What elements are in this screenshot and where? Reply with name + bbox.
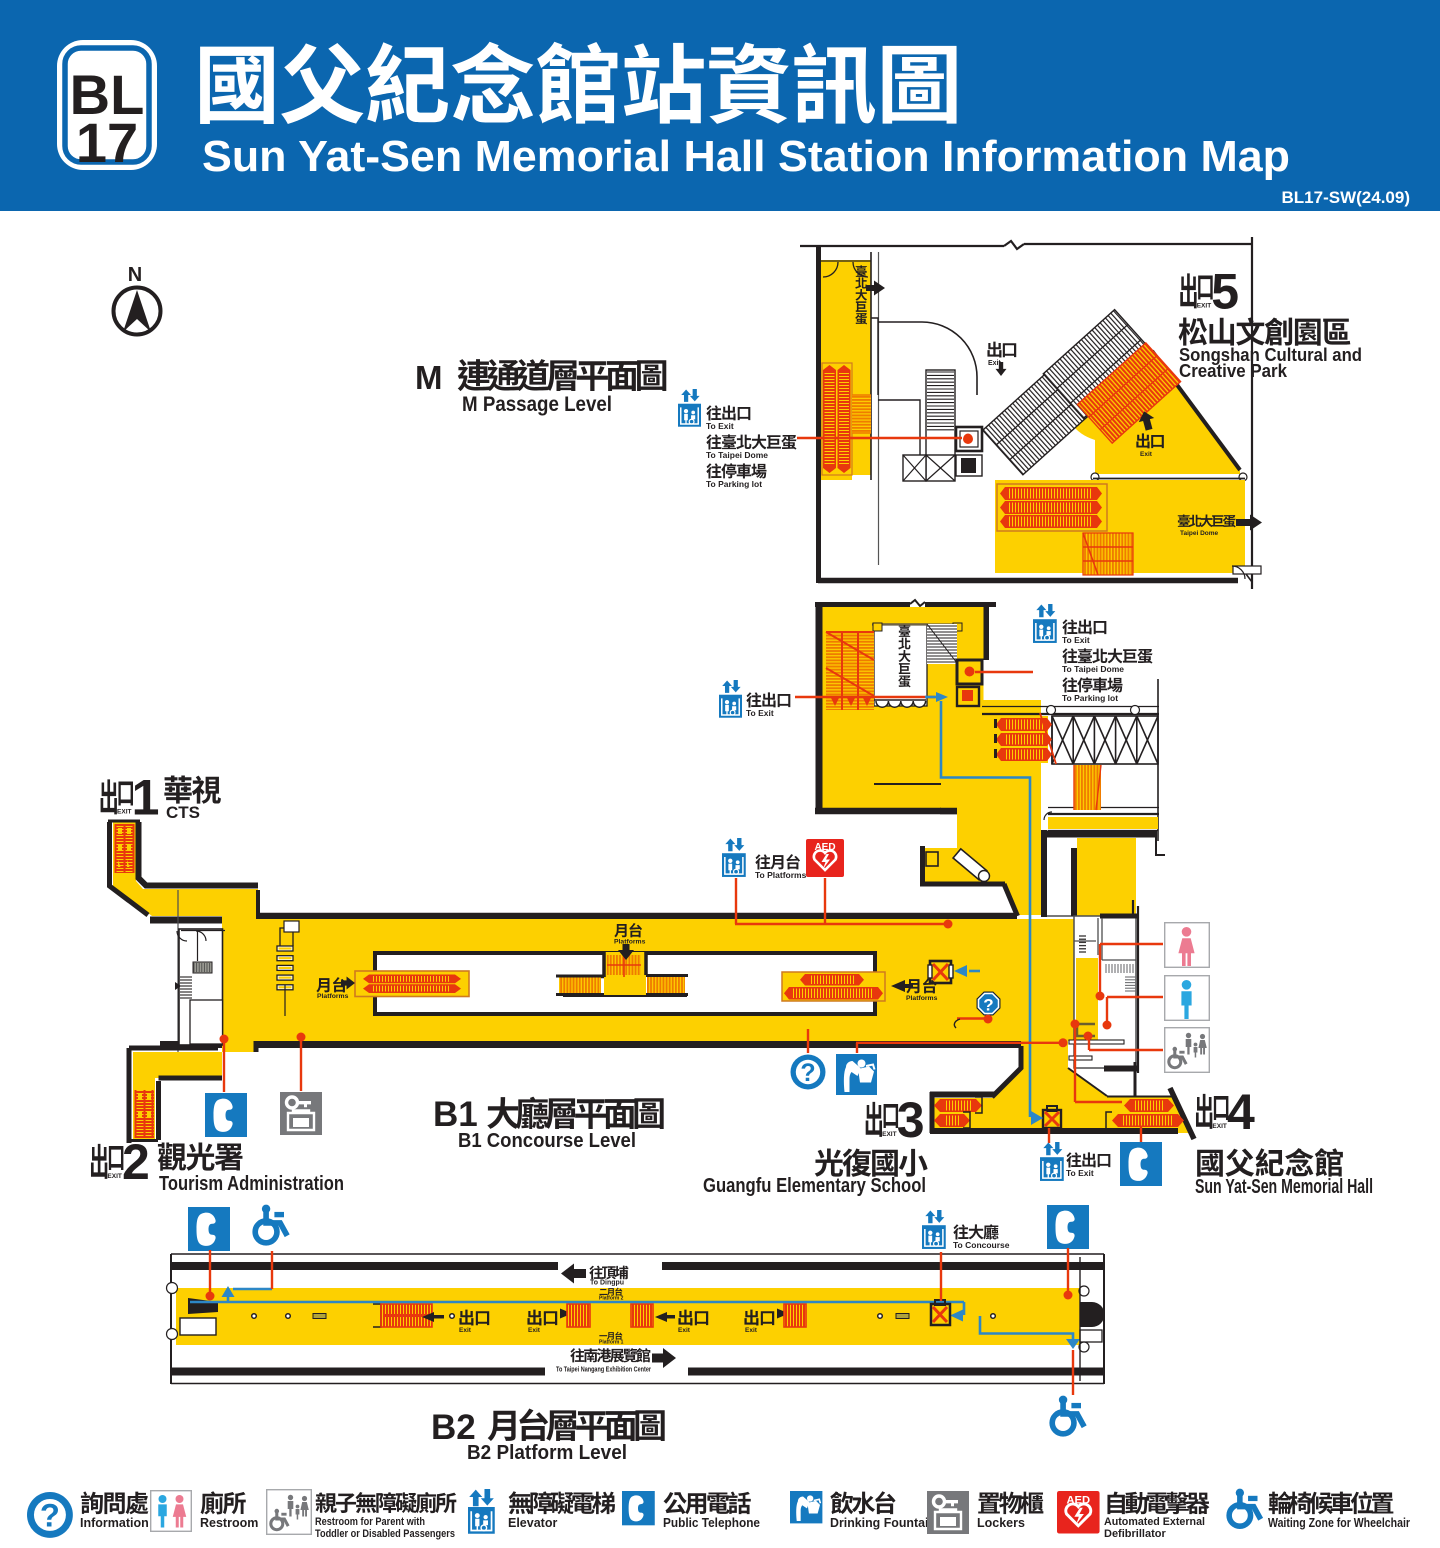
svg-text:BL17-SW(24.09): BL17-SW(24.09) <box>1282 188 1410 207</box>
svg-text:To Platforms: To Platforms <box>755 870 807 880</box>
svg-text:To Concourse: To Concourse <box>953 1240 1010 1250</box>
svg-text:EXIT: EXIT <box>882 1131 897 1138</box>
svg-text:Drinking Fountain: Drinking Fountain <box>830 1516 936 1530</box>
svg-text:To Taipei Dome: To Taipei Dome <box>1062 664 1124 674</box>
svg-text:Platforms: Platforms <box>317 993 349 1000</box>
svg-text:To Parking lot: To Parking lot <box>706 479 762 489</box>
svg-text:Creative Park: Creative Park <box>1179 360 1288 381</box>
svg-text:Exit: Exit <box>745 1327 758 1334</box>
svg-text:Guangfu Elementary School: Guangfu Elementary School <box>703 1175 926 1197</box>
svg-text:Restroom for Parent with: Restroom for Parent with <box>315 1516 425 1528</box>
svg-text:Toddler or Disabled Passengers: Toddler or Disabled Passengers <box>315 1528 455 1540</box>
svg-text:Exit: Exit <box>528 1327 541 1334</box>
svg-text:To Taipei Dome: To Taipei Dome <box>706 450 768 460</box>
svg-text:Platform 2: Platform 2 <box>599 1296 624 1302</box>
svg-text:EXIT: EXIT <box>1212 1123 1227 1130</box>
svg-text:Exit: Exit <box>1140 451 1153 458</box>
svg-text:3: 3 <box>897 1092 925 1148</box>
svg-text:Exit: Exit <box>459 1327 472 1334</box>
svg-text:Sun Yat-Sen Memorial Hall: Sun Yat-Sen Memorial Hall <box>1195 1176 1373 1198</box>
svg-text:Platform 1: Platform 1 <box>599 1340 624 1346</box>
svg-text:B1 Concourse Level: B1 Concourse Level <box>458 1129 636 1152</box>
svg-text:2: 2 <box>122 1134 150 1190</box>
svg-text:M Passage Level: M Passage Level <box>462 392 612 416</box>
svg-text:17: 17 <box>76 111 138 174</box>
svg-text:Public Telephone: Public Telephone <box>663 1516 760 1530</box>
svg-text:Taipei Dome: Taipei Dome <box>1180 530 1219 537</box>
svg-text:To Parking lot: To Parking lot <box>1062 693 1118 703</box>
svg-text:4: 4 <box>1227 1084 1255 1140</box>
svg-text:EXIT: EXIT <box>1197 302 1212 309</box>
svg-text:To Dingpu: To Dingpu <box>590 1280 624 1287</box>
svg-text:5: 5 <box>1211 264 1239 320</box>
svg-text:Automated External: Automated External <box>1104 1516 1205 1528</box>
svg-text:Exit: Exit <box>678 1327 691 1334</box>
svg-text:To Exit: To Exit <box>706 421 734 431</box>
svg-text:Restroom: Restroom <box>200 1516 258 1530</box>
svg-text:Elevator: Elevator <box>508 1516 557 1530</box>
svg-text:B2 Platform Level: B2 Platform Level <box>467 1441 627 1464</box>
svg-text:EXIT: EXIT <box>117 808 132 815</box>
svg-text:Lockers: Lockers <box>977 1516 1025 1530</box>
svg-text:Waiting Zone for Wheelchair: Waiting Zone for Wheelchair <box>1268 1516 1410 1530</box>
svg-text:1: 1 <box>132 770 160 826</box>
svg-text:M: M <box>415 359 443 396</box>
svg-text:Platforms: Platforms <box>906 995 938 1002</box>
svg-text:Defibrillator: Defibrillator <box>1104 1528 1166 1540</box>
svg-text:To Taipei Nangang Exhibition C: To Taipei Nangang Exhibition Center <box>556 1367 651 1374</box>
svg-text:Sun Yat-Sen Memorial Hall Stat: Sun Yat-Sen Memorial Hall Station Inform… <box>202 132 1290 181</box>
svg-text:To Exit: To Exit <box>1066 1168 1094 1178</box>
svg-text:Information: Information <box>80 1516 149 1530</box>
svg-text:CTS: CTS <box>166 803 200 822</box>
svg-text:Platforms: Platforms <box>614 939 646 946</box>
svg-text:N: N <box>128 264 142 286</box>
svg-text:EXIT: EXIT <box>107 1173 122 1180</box>
svg-text:To Exit: To Exit <box>746 708 774 718</box>
svg-text:To Exit: To Exit <box>1062 635 1090 645</box>
svg-text:Tourism Administration: Tourism Administration <box>159 1173 344 1195</box>
